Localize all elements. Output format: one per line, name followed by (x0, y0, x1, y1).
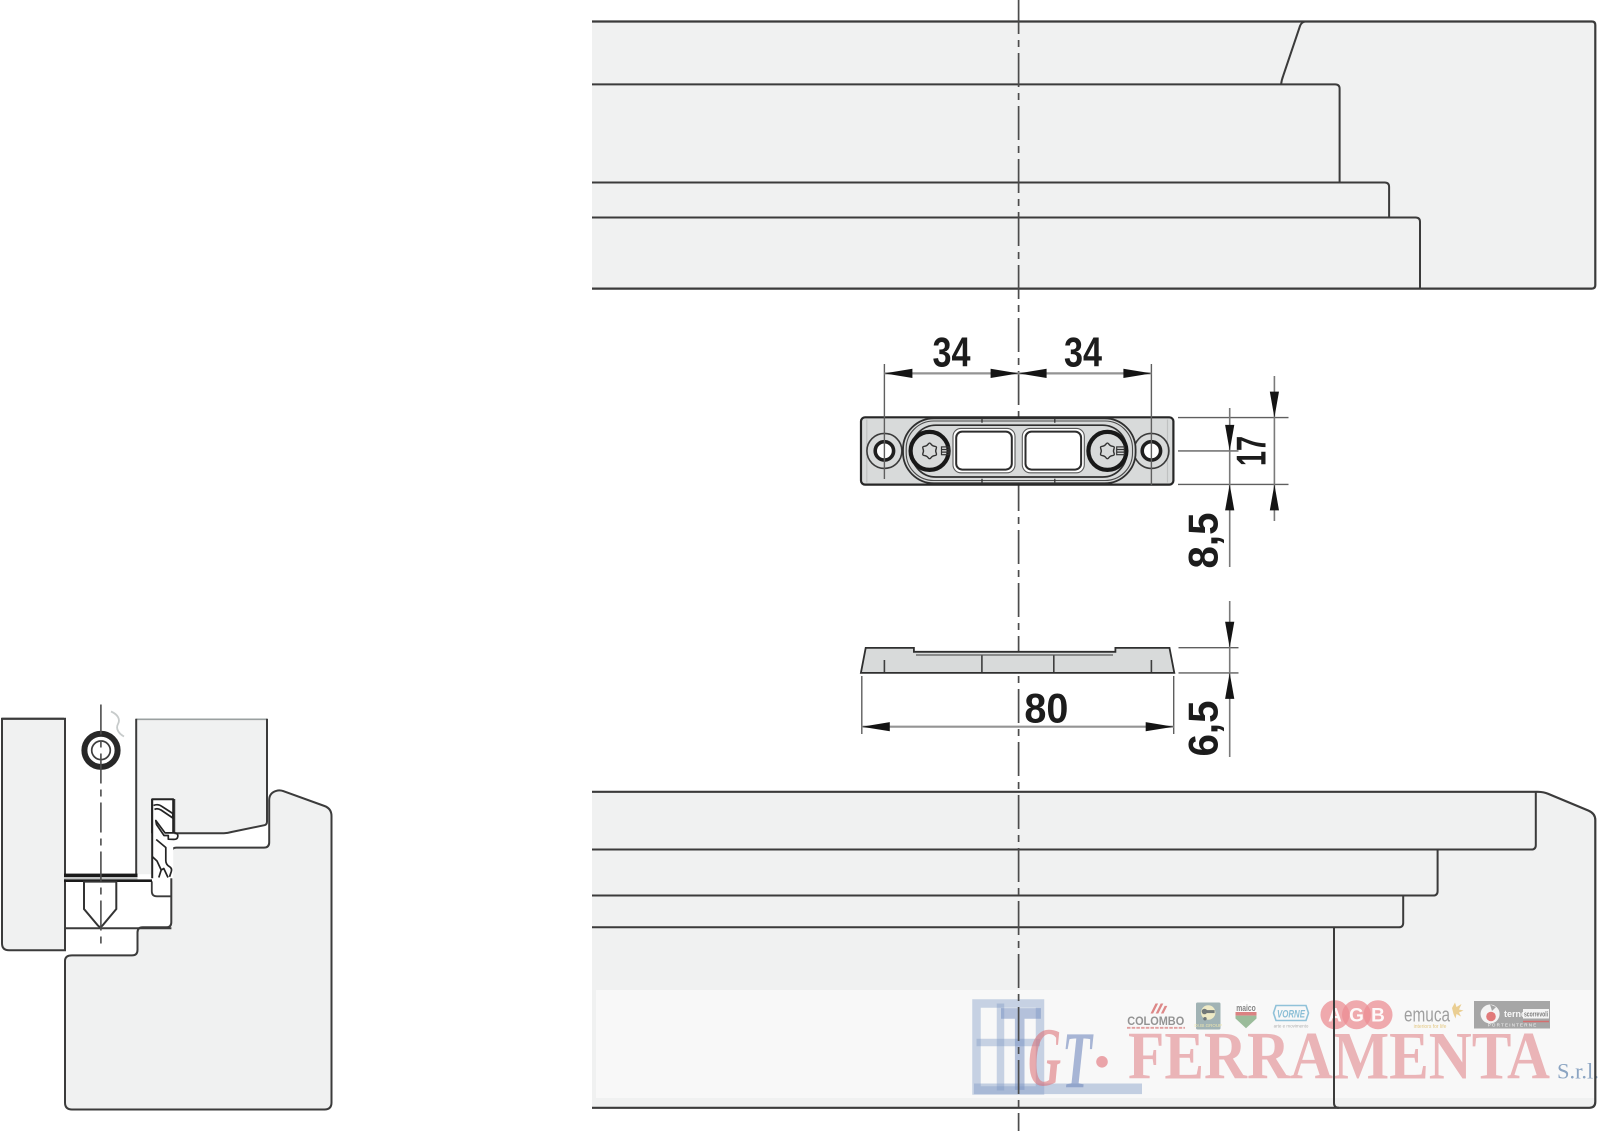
svg-text:6,5: 6,5 (1180, 701, 1227, 757)
svg-text:80: 80 (1024, 685, 1068, 732)
svg-text:G: G (1028, 1011, 1061, 1104)
svg-text:17: 17 (1228, 436, 1275, 466)
svg-text:34: 34 (1064, 329, 1103, 376)
svg-text:T: T (1062, 1017, 1094, 1105)
svg-text:34: 34 (933, 329, 972, 376)
svg-text:maico: maico (1236, 1003, 1256, 1013)
svg-text:FERRAMENTA: FERRAMENTA (1128, 1018, 1550, 1094)
svg-text:8,5: 8,5 (1180, 513, 1227, 569)
svg-text:S.r.l.: S.r.l. (1557, 1059, 1599, 1084)
